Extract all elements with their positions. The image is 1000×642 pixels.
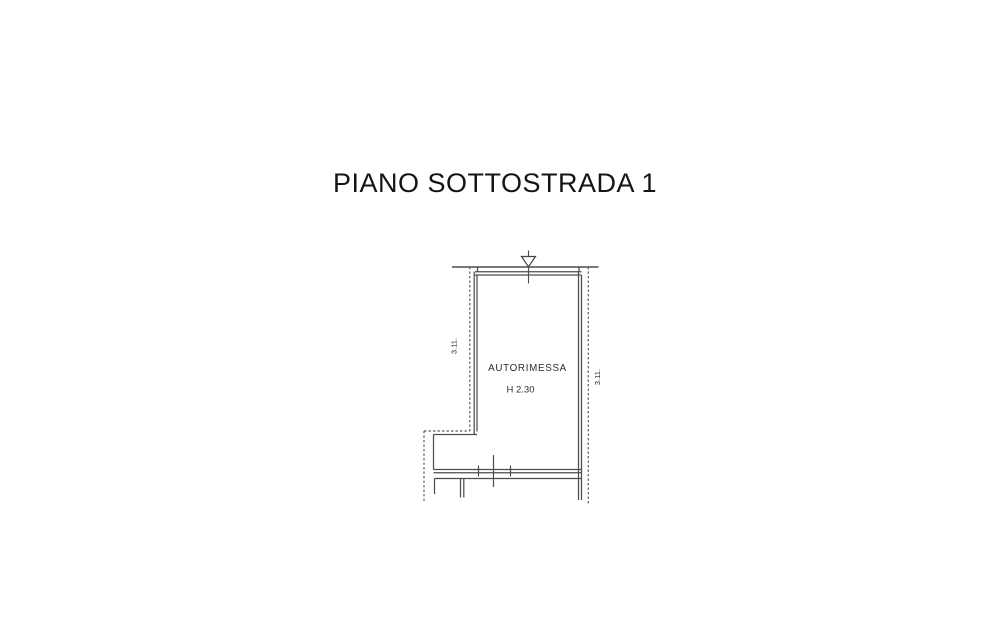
floor-plan: AUTORIMESSA H 2.30 3.11. 3.11. xyxy=(412,244,618,512)
dimension-label-right: 3.11. xyxy=(593,369,602,385)
page-title: PIANO SOTTOSTRADA 1 xyxy=(0,168,990,199)
room-height-label: H 2.30 xyxy=(507,385,535,396)
dimension-label-left: 3.11. xyxy=(450,338,459,354)
bottom-wall-opening-ticks xyxy=(479,466,511,477)
room-label: AUTORIMESSA xyxy=(488,363,567,374)
room-walls xyxy=(434,267,582,500)
page: PIANO SOTTOSTRADA 1 xyxy=(0,0,1000,642)
